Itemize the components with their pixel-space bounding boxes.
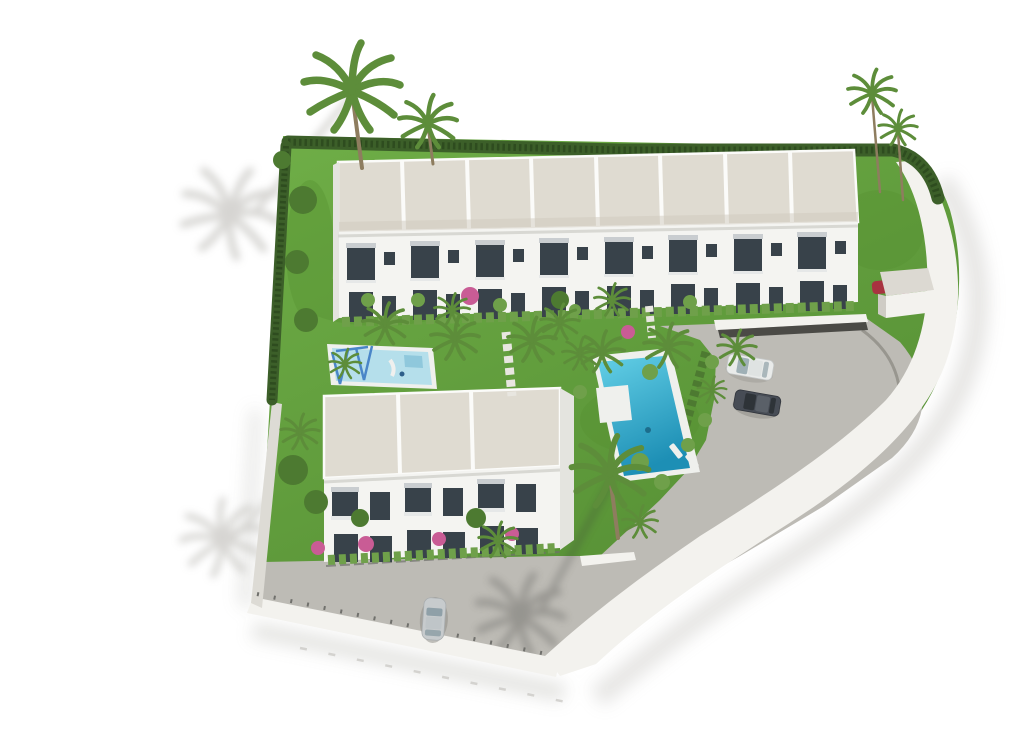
pool-platform bbox=[596, 385, 632, 423]
bottom-building-roof bbox=[324, 388, 560, 478]
kids-pool-spa bbox=[404, 355, 423, 368]
render-canvas bbox=[0, 0, 1024, 732]
gatehouse bbox=[878, 268, 934, 318]
swimmer bbox=[645, 427, 651, 433]
top-building-west-gable bbox=[333, 162, 339, 322]
pool-figure bbox=[400, 372, 405, 377]
